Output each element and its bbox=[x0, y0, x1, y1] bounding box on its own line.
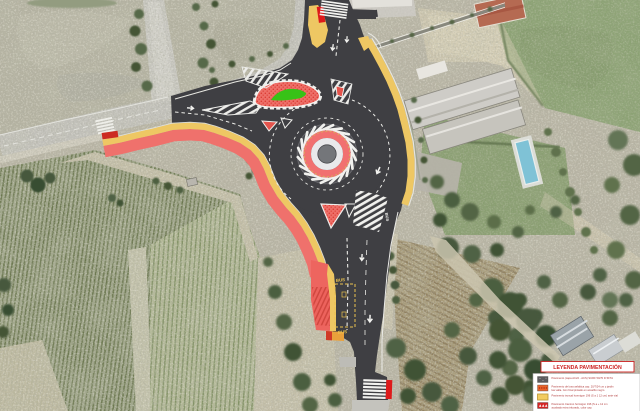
svg-text:Pavimento (capa AC22 - ACS) SU: Pavimento (capa AC22 - ACS) SURF 50/70 D… bbox=[552, 376, 614, 380]
svg-text:acabado extra triturado, color: acabado extra triturado, color cap. bbox=[552, 405, 593, 409]
svg-text:BUS: BUS bbox=[338, 329, 348, 335]
svg-text:LEYENDA PAVIMENTACIÓN: LEYENDA PAVIMENTACIÓN bbox=[553, 363, 622, 371]
svg-text:BUS: BUS bbox=[336, 277, 346, 283]
svg-text:las valla. Con final pintado e: las valla. Con final pintado en amarillo… bbox=[552, 388, 605, 392]
svg-text:Pavimento troncal hormigon 196: Pavimento troncal hormigon 196 (S a 1 12… bbox=[552, 394, 619, 398]
